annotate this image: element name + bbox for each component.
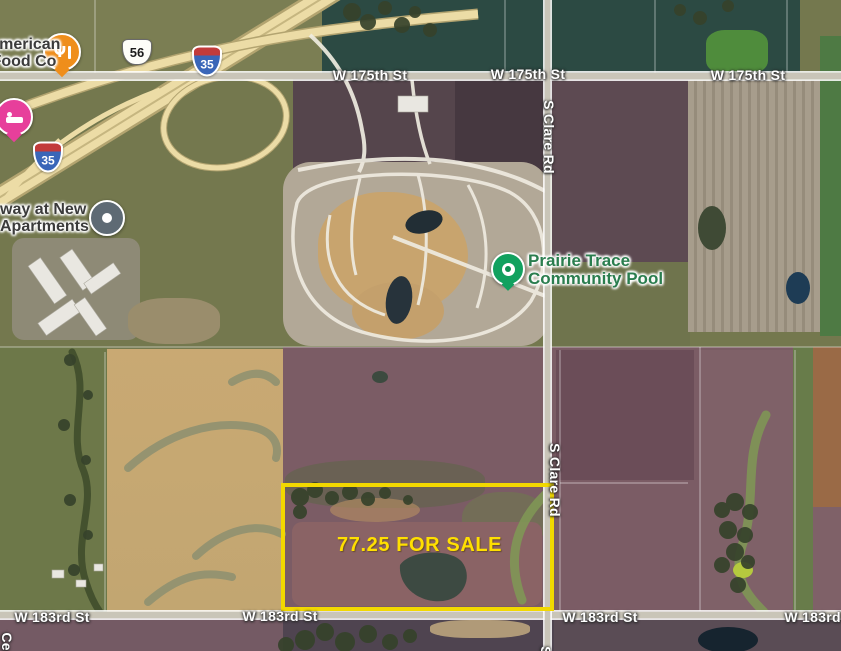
industrial-yard: [688, 80, 822, 332]
field-purple-darker: [556, 350, 694, 480]
pool-pin[interactable]: [491, 252, 525, 286]
poi-label-line: American: [0, 37, 80, 54]
road-label-s-clare: S Clare Rd: [547, 443, 563, 517]
field-orange-right: [813, 347, 841, 507]
road-label-s-clare: S Clare Rd: [541, 100, 557, 174]
field-purple-eastclare: [552, 78, 690, 262]
apartments-pin[interactable]: [89, 200, 125, 236]
poi-label-new-apartments[interactable]: way at New Apartments: [0, 202, 89, 236]
apartments-grounds: [12, 238, 140, 340]
road-label-w183rd: W 183rd St: [562, 609, 637, 625]
for-sale-label: 77.25 FOR SALE: [337, 534, 502, 557]
road-label-w183rd: W 183rd St: [242, 608, 317, 624]
field-pasture-lowerleft: [0, 347, 107, 613]
i-35-number: 35: [41, 154, 54, 168]
field-tan-stubble: [107, 349, 287, 612]
interchange-loop-ramp: [42, 65, 295, 179]
pin-tail: [6, 127, 22, 143]
poi-label-community-pool[interactable]: Prairie Trace Community Pool: [528, 252, 663, 288]
place-icon: [102, 213, 112, 223]
field-green-strip-right: [793, 347, 813, 612]
road-label-w183rd: W 183rd St: [14, 609, 89, 625]
field-green-column: [820, 36, 841, 336]
road-label-w183rd: W 183rd St: [784, 609, 841, 625]
hotel-icon: [6, 112, 23, 123]
hotel-pin[interactable]: [0, 98, 33, 136]
poi-label-line: Prairie Trace: [528, 252, 663, 270]
satellite-map[interactable]: 77.25 FOR SALE W 175th St W 175th St W 1…: [0, 0, 841, 651]
road-label-w175th: W 175th St: [711, 67, 786, 83]
road-label-cedar-partial: Ced: [0, 632, 15, 651]
poi-label-line: Community Pool: [528, 270, 663, 288]
i-35-shield: 35: [33, 142, 63, 173]
dirt-patch: [128, 298, 220, 344]
poi-label-line: way at New: [0, 202, 89, 219]
poi-label-american-food[interactable]: American Food Co: [0, 37, 80, 71]
road-label-w175th: W 175th St: [491, 66, 566, 82]
i-35-number: 35: [200, 58, 213, 72]
poi-label-line: Food Co: [0, 54, 80, 71]
bottom-tan-path: [430, 620, 530, 638]
field-purple-dark: [455, 80, 555, 170]
road-label-w175th: W 175th St: [333, 67, 408, 83]
poi-label-line: Apartments: [0, 219, 89, 236]
housing-sand-excavation: [352, 282, 444, 340]
us-56-number: 56: [130, 45, 144, 60]
road-label-clare-partial: S: [538, 646, 554, 651]
pool-icon: [502, 263, 515, 276]
